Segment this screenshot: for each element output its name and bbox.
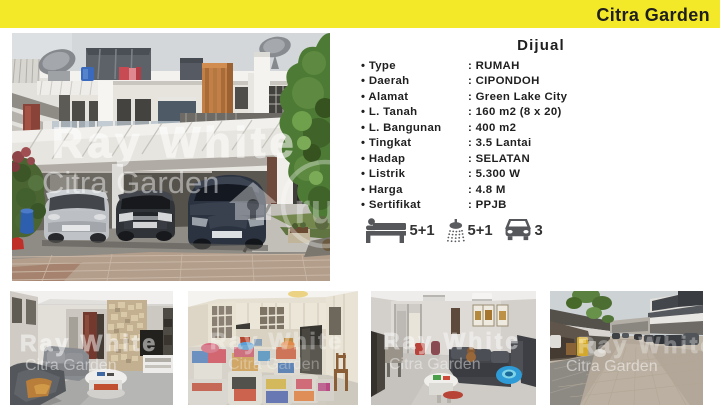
svg-text:ru: ru: [294, 185, 330, 232]
svg-text:Ray White: Ray White: [20, 330, 158, 356]
svg-text:Citra Garden: Citra Garden: [42, 165, 219, 200]
svg-text:Ray White: Ray White: [52, 119, 298, 167]
svg-text:Ray White: Ray White: [210, 328, 344, 354]
svg-text:Citra Garden: Citra Garden: [25, 357, 117, 374]
svg-text:Ray White: Ray White: [578, 332, 703, 358]
svg-text:Citra Garden: Citra Garden: [389, 356, 481, 373]
svg-text:Ray White: Ray White: [383, 328, 521, 354]
svg-text:Citra Garden: Citra Garden: [566, 358, 658, 375]
svg-text:Citra Garden: Citra Garden: [228, 356, 320, 373]
